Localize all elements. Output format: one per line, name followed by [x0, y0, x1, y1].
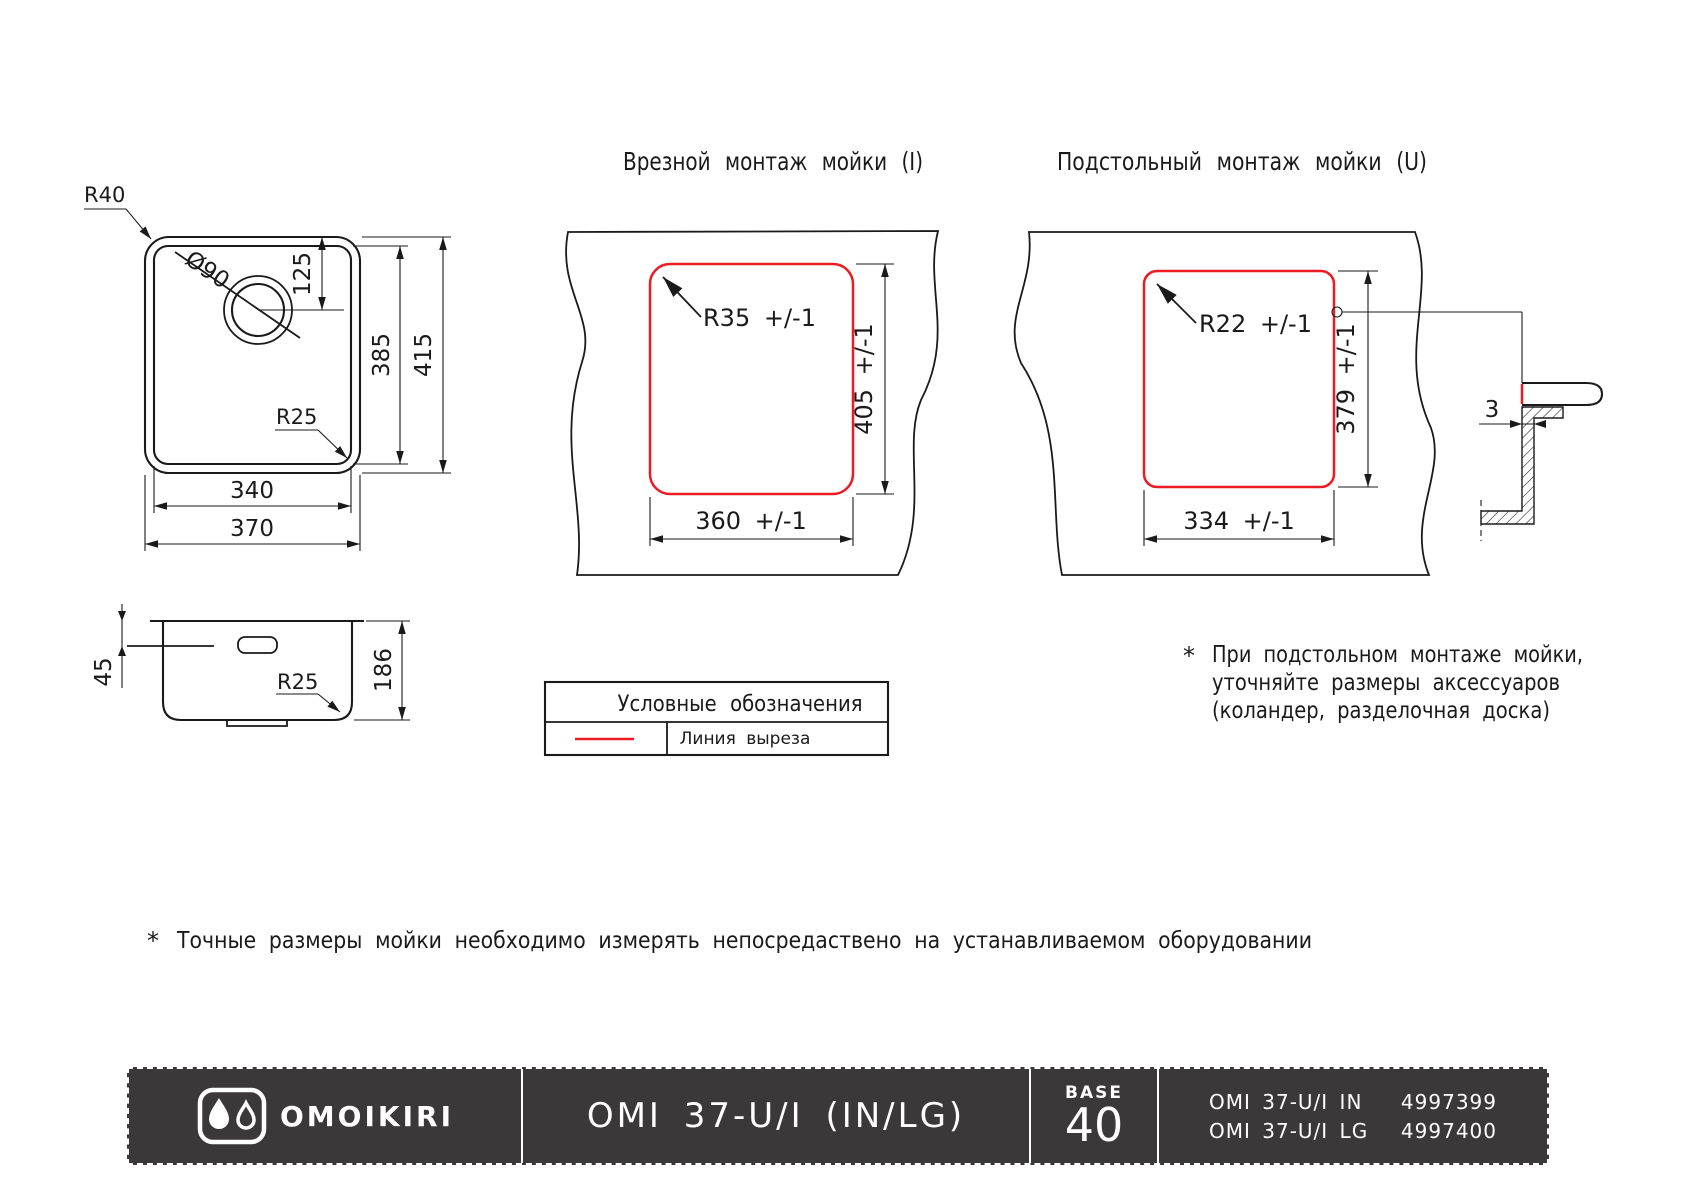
- under-note-line1: При подстольном монтаже мойки,: [1212, 642, 1583, 668]
- inner-radius-label: R25: [276, 405, 317, 429]
- bottom-note-text: Точные размеры мойки необходимо измерять…: [176, 928, 1312, 954]
- inset-corner-radius-label: R35 +/-1: [703, 304, 816, 332]
- legend-title: Условные обозначения: [618, 692, 863, 717]
- inset-cutout-height-label: 405 +/-1: [850, 323, 878, 435]
- outer-width-label: 370: [230, 516, 274, 542]
- drain-offset-label: 125: [290, 252, 316, 296]
- bottom-note-star: *: [147, 927, 159, 955]
- product-codes-cell: OMI 37-U/I IN 4997399 OMI 37-U/I LG 4997…: [1157, 1069, 1547, 1163]
- rim-depth-label: 45: [91, 657, 117, 686]
- product-row: OMI 37-U/I LG 4997400: [1209, 1119, 1497, 1143]
- product-name: OMI 37-U/I IN: [1209, 1090, 1362, 1114]
- product-code: 4997399: [1401, 1090, 1497, 1114]
- under-note-line2: уточняйте размеры аксессуаров: [1212, 670, 1560, 696]
- under-mount-drawing: Подстольный монтаж мойки (U) R22 +/-1 37…: [1015, 147, 1522, 575]
- omoikiri-logo-icon: [196, 1085, 268, 1147]
- product-name: OMI 37-U/I LG: [1209, 1119, 1368, 1143]
- title-block: OMOIKIRI OMI 37-U/I (IN/LG) BASE 40 OMI …: [127, 1067, 1549, 1165]
- inner-width-label: 340: [230, 478, 274, 504]
- drop-filled-icon: [209, 1098, 229, 1129]
- height-label: 186: [371, 648, 397, 692]
- legend-cut-line-label: Линия выреза: [680, 729, 811, 749]
- under-note-star: *: [1183, 642, 1195, 670]
- product-row: OMI 37-U/I IN 4997399: [1209, 1090, 1497, 1114]
- under-mount-note: * При подстольном монтаже мойки, уточняй…: [1183, 642, 1583, 724]
- under-mount-section-detail: 3: [1479, 383, 1602, 541]
- corner-radius-label: R40: [84, 183, 125, 207]
- drop-outline-icon: [238, 1103, 254, 1128]
- technical-drawing-sheet: Ø90 R40 125 R25 385 415 340 370: [0, 0, 1684, 1190]
- product-code: 4997400: [1401, 1119, 1497, 1143]
- cutout-line-inset: [650, 264, 853, 494]
- sink-top-view: Ø90 R40 125 R25 385 415 340 370: [84, 183, 451, 551]
- inset-cutout-width-label: 360 +/-1: [695, 507, 807, 535]
- model-cell: OMI 37-U/I (IN/LG): [521, 1069, 1029, 1163]
- bottom-note: * Точные размеры мойки необходимо измеря…: [147, 927, 1312, 955]
- brand-name: OMOIKIRI: [280, 1100, 454, 1133]
- drawing-canvas: Ø90 R40 125 R25 385 415 340 370: [0, 0, 1684, 1010]
- base-cell: BASE 40: [1029, 1069, 1157, 1163]
- sink-side-view: 45 186 R25: [91, 604, 410, 726]
- edge-gap-label: 3: [1485, 397, 1500, 423]
- under-note-line3: (коландер, разделочная доска): [1212, 698, 1550, 724]
- bottom-radius-label: R25: [277, 670, 318, 694]
- legend-box: Условные обозначения Линия выреза: [545, 682, 888, 755]
- under-mount-title: Подстольный монтаж мойки (U): [1057, 147, 1427, 176]
- cutout-line-under: [1144, 271, 1334, 487]
- inset-mount-title: Врезной монтаж мойки (I): [623, 147, 923, 176]
- brand-cell: OMOIKIRI: [129, 1069, 521, 1163]
- under-cutout-width-label: 334 +/-1: [1183, 507, 1295, 535]
- under-cutout-height-label: 379 +/-1: [1332, 323, 1360, 435]
- base-value: 40: [1065, 1102, 1124, 1148]
- inner-height-label: 385: [369, 333, 395, 377]
- inset-mount-drawing: Врезной монтаж мойки (I) R35 +/-1 405 +/…: [566, 147, 938, 575]
- model-name: OMI 37-U/I (IN/LG): [587, 1096, 965, 1136]
- under-corner-radius-label: R22 +/-1: [1199, 310, 1312, 338]
- outer-height-label: 415: [411, 333, 437, 377]
